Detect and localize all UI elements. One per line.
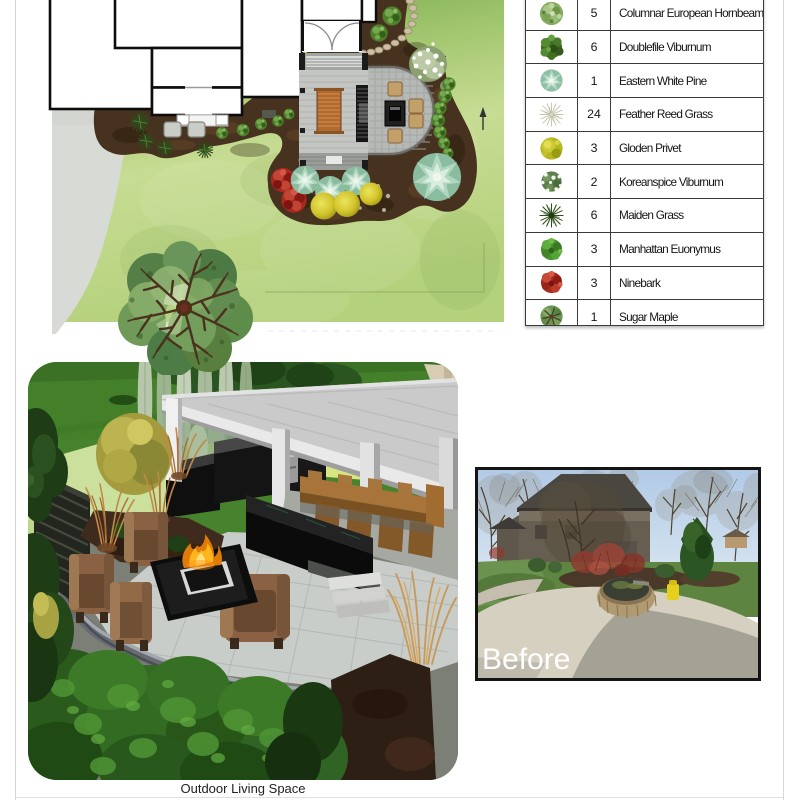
svg-text:Before: Before: [482, 643, 570, 676]
